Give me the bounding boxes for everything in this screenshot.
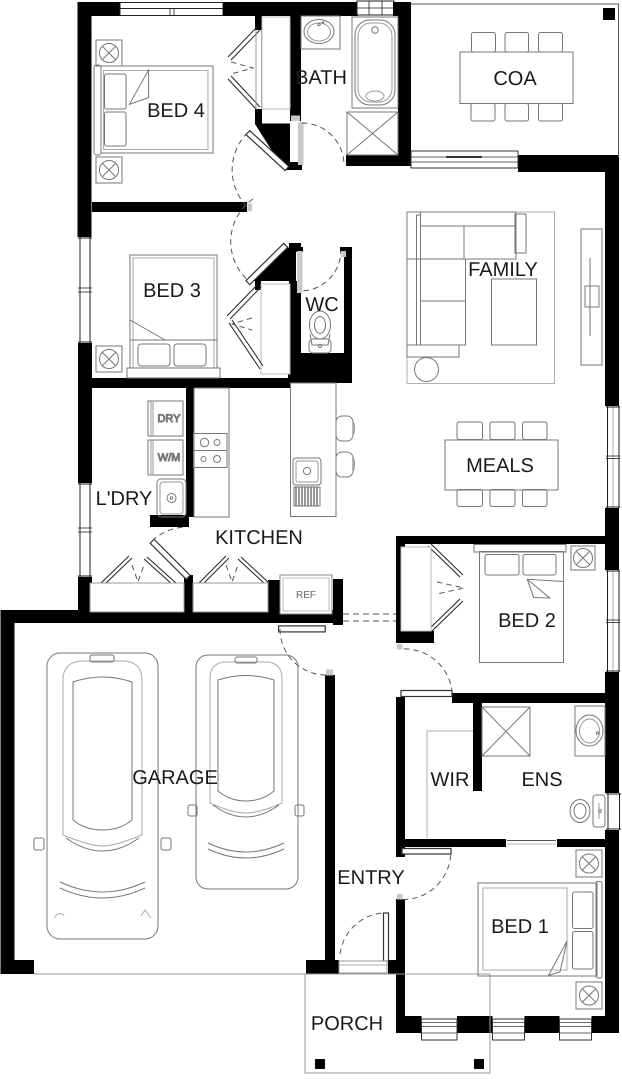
svg-text:FAMILY: FAMILY bbox=[468, 259, 538, 281]
svg-text:COA: COA bbox=[493, 68, 537, 90]
svg-text:ENS: ENS bbox=[521, 769, 562, 791]
svg-text:L'DRY: L'DRY bbox=[96, 488, 153, 510]
svg-text:BED 4: BED 4 bbox=[147, 100, 205, 122]
svg-text:WIR: WIR bbox=[431, 769, 470, 791]
svg-text:PORCH: PORCH bbox=[311, 1013, 383, 1035]
svg-text:BED 2: BED 2 bbox=[498, 610, 556, 632]
svg-text:W/M: W/M bbox=[158, 452, 181, 464]
svg-text:BATH: BATH bbox=[295, 67, 347, 89]
svg-text:MEALS: MEALS bbox=[466, 455, 534, 477]
svg-text:BED 1: BED 1 bbox=[491, 916, 549, 938]
svg-text:ENTRY: ENTRY bbox=[337, 867, 404, 889]
svg-text:GARAGE: GARAGE bbox=[132, 767, 218, 789]
svg-text:KITCHEN: KITCHEN bbox=[215, 527, 303, 549]
svg-text:REF: REF bbox=[296, 590, 316, 601]
svg-text:BED 3: BED 3 bbox=[143, 280, 201, 302]
svg-text:WC: WC bbox=[305, 294, 338, 316]
svg-text:DRY: DRY bbox=[157, 413, 181, 425]
